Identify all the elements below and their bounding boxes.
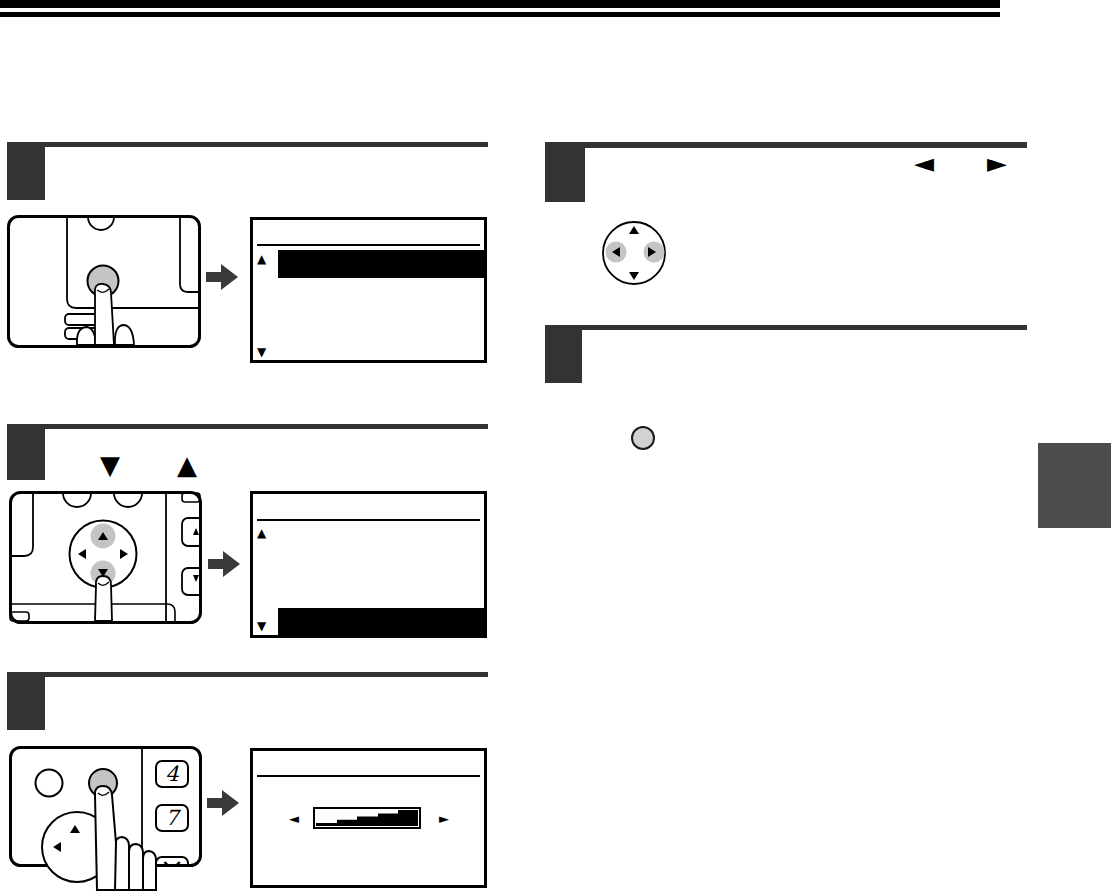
step-2-up-key-icon: ▲ <box>177 452 197 478</box>
lcd-3-title-divider <box>257 775 480 777</box>
lcd-1-title-divider <box>257 244 480 246</box>
panel-3-illustration: 4 7 × <box>9 746 202 892</box>
manual-page: ▲ ▼ ▼ ▲ ▲ ▼ <box>0 0 1111 892</box>
step-4-number-box <box>545 142 585 202</box>
step-5-number-box <box>545 325 582 383</box>
index-finger <box>95 576 112 621</box>
index-finger <box>95 284 114 345</box>
step-1-number-box <box>7 142 45 200</box>
lcd-2-title-divider <box>257 519 480 521</box>
step-1-rule <box>7 142 488 147</box>
lcd-2-scroll-down-icon: ▼ <box>257 620 266 632</box>
step-4-rule <box>545 142 1027 148</box>
numeric-key-x-label: × <box>159 851 184 886</box>
step-2-number-box <box>7 424 45 480</box>
lcd-2-scroll-up-icon: ▲ <box>257 527 266 539</box>
step-5-rule <box>545 325 1027 330</box>
lcd-screen-2: ▲ ▼ <box>250 491 487 638</box>
flow-arrow-1-icon <box>206 262 240 292</box>
step-4-right-key-icon: ► <box>987 150 1007 176</box>
top-rule-thick <box>0 0 1000 8</box>
numeric-key-4-label: 4 <box>165 762 179 786</box>
round-button-inline-icon <box>631 426 655 450</box>
lcd-1-selected-row <box>278 250 484 278</box>
flow-arrow-3-icon <box>207 788 241 818</box>
round-button-plain <box>36 770 63 797</box>
chapter-side-tab <box>1038 443 1111 528</box>
hand-finger-2 <box>115 837 129 890</box>
lcd-2-selected-row <box>278 608 484 635</box>
step-3-rule <box>7 672 488 677</box>
panel-2-illustration <box>9 491 202 624</box>
lcd-3-left-arrow-icon: ◄ <box>289 812 299 825</box>
step-3-number-box <box>7 672 45 730</box>
lcd-screen-3: ◄ ► <box>250 748 487 888</box>
step-2-down-key-icon: ▼ <box>100 452 120 478</box>
lcd-screen-1: ▲ ▼ <box>250 217 487 363</box>
step-4-left-key-icon: ◄ <box>914 150 934 176</box>
panel-1-illustration <box>7 215 201 348</box>
dpad-left-right-illustration <box>600 219 668 287</box>
top-rule-thin <box>0 12 1000 17</box>
hand-finger-3 <box>129 844 143 890</box>
lcd-1-scroll-up-icon: ▲ <box>257 253 266 265</box>
flow-arrow-2-icon <box>208 549 242 579</box>
lcd-3-right-arrow-icon: ► <box>439 812 449 825</box>
step-2-rule <box>7 424 488 429</box>
hand-finger-4 <box>143 851 156 890</box>
density-scale-indicator <box>313 807 421 829</box>
index-finger <box>95 786 116 890</box>
lcd-1-scroll-down-icon: ▼ <box>257 346 266 358</box>
